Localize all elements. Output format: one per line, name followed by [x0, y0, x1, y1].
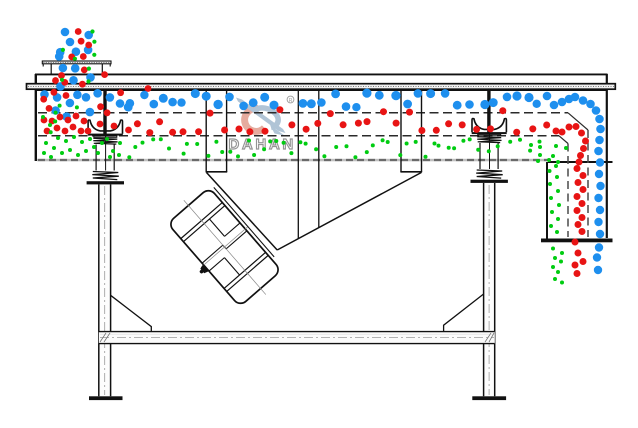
svg-text:DAHAN: DAHAN — [229, 137, 296, 153]
svg-text:R: R — [289, 98, 293, 104]
